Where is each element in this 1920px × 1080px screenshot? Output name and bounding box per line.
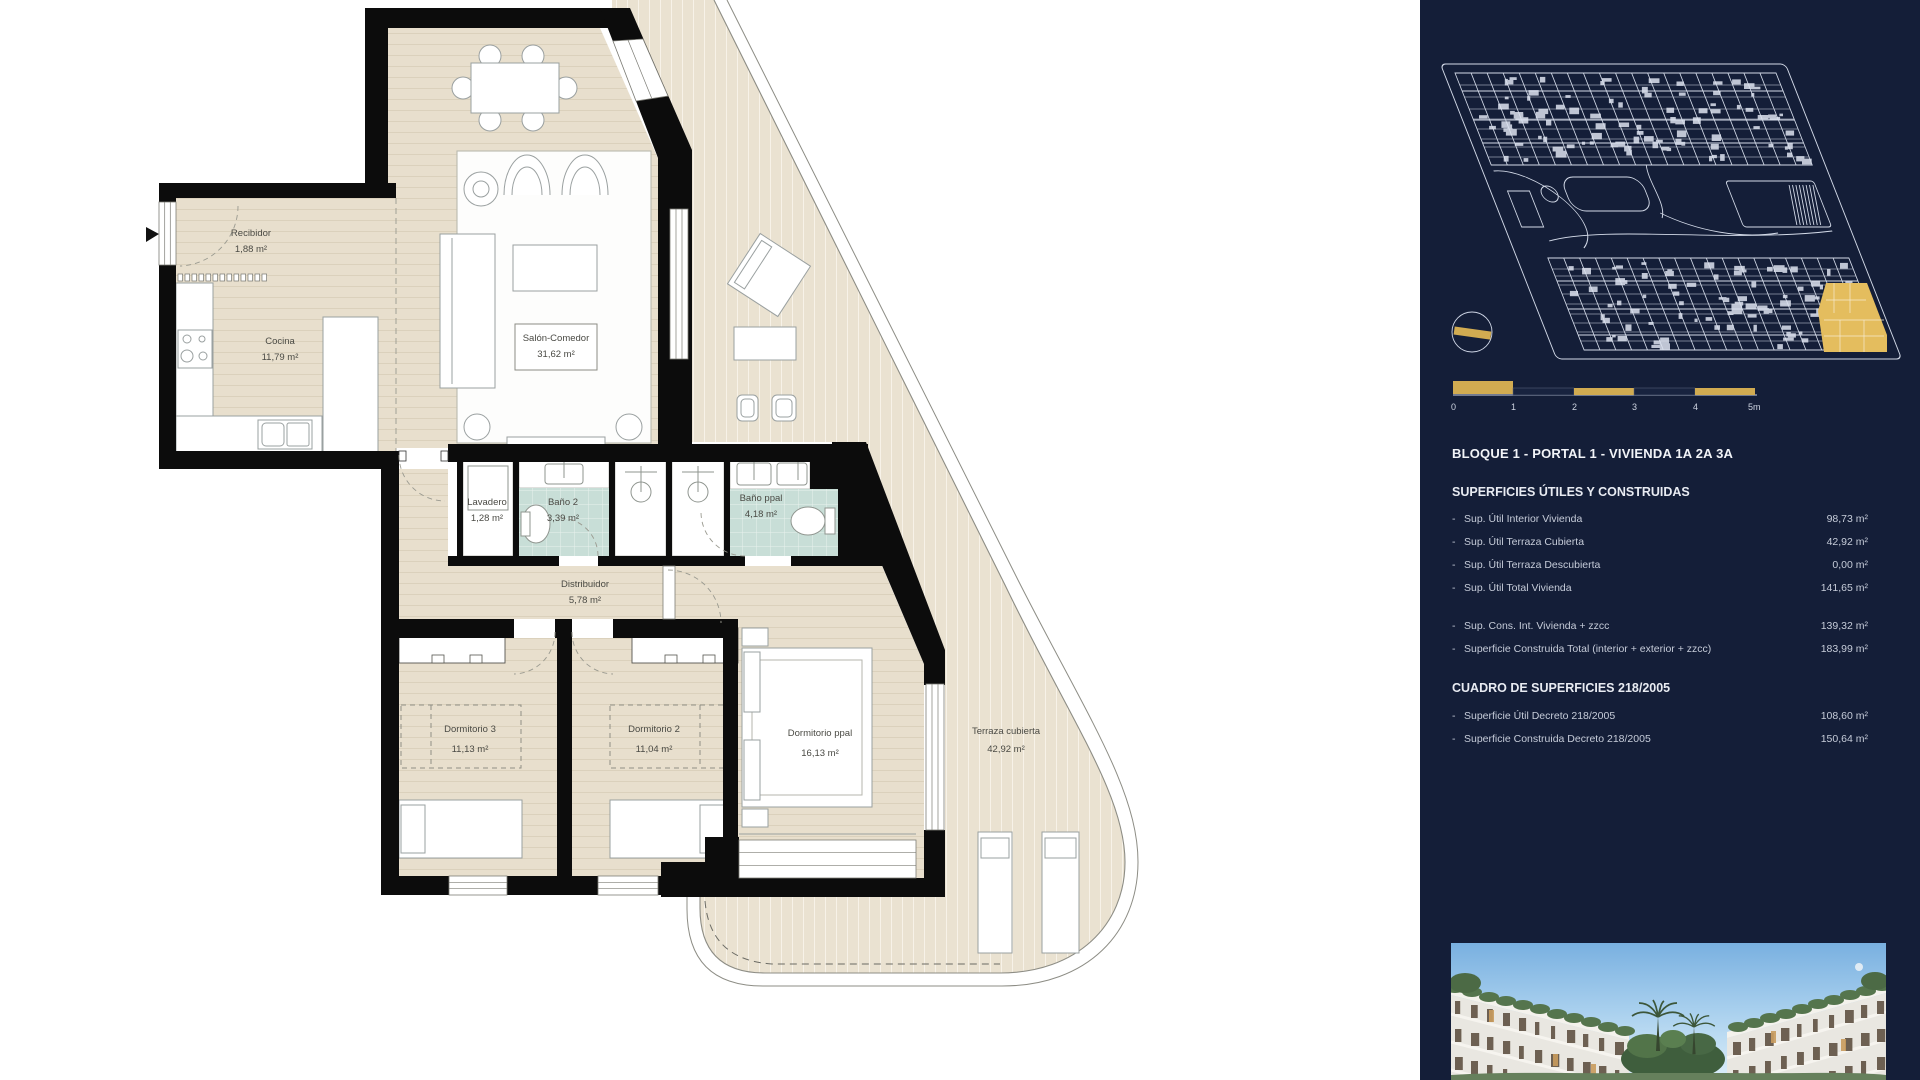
svg-text:Terraza cubierta: Terraza cubierta <box>972 726 1041 737</box>
svg-text:42,92 m²: 42,92 m² <box>987 744 1025 755</box>
svg-text:Cocina: Cocina <box>265 336 295 347</box>
svg-text:1: 1 <box>1511 402 1516 412</box>
svg-text:1,88 m²: 1,88 m² <box>235 244 267 255</box>
svg-text:Lavadero: Lavadero <box>467 497 507 508</box>
svg-text:Distribuidor: Distribuidor <box>561 579 609 590</box>
svg-text:11,13 m²: 11,13 m² <box>452 744 489 755</box>
svg-text:4: 4 <box>1693 402 1698 412</box>
svg-text:Dormitorio 2: Dormitorio 2 <box>628 724 680 735</box>
svg-text:Baño 2: Baño 2 <box>548 497 578 508</box>
svg-text:16,13 m²: 16,13 m² <box>801 748 839 759</box>
svg-text:Dormitorio ppal: Dormitorio ppal <box>788 728 852 739</box>
svg-text:3,39 m²: 3,39 m² <box>547 513 579 524</box>
svg-text:31,62 m²: 31,62 m² <box>537 349 575 360</box>
svg-text:11,04 m²: 11,04 m² <box>636 744 673 755</box>
svg-text:4,18 m²: 4,18 m² <box>745 509 777 520</box>
svg-text:Dormitorio 3: Dormitorio 3 <box>444 724 496 735</box>
svg-text:Salón-Comedor: Salón-Comedor <box>523 333 590 344</box>
svg-text:Recibidor: Recibidor <box>231 228 271 239</box>
svg-text:5,78 m²: 5,78 m² <box>569 595 601 606</box>
svg-text:5m: 5m <box>1748 402 1761 412</box>
svg-text:1,28 m²: 1,28 m² <box>471 513 503 524</box>
svg-text:3: 3 <box>1632 402 1637 412</box>
svg-text:2: 2 <box>1572 402 1577 412</box>
svg-text:0: 0 <box>1451 402 1456 412</box>
svg-text:Baño ppal: Baño ppal <box>740 493 783 504</box>
svg-text:11,79 m²: 11,79 m² <box>262 352 299 363</box>
